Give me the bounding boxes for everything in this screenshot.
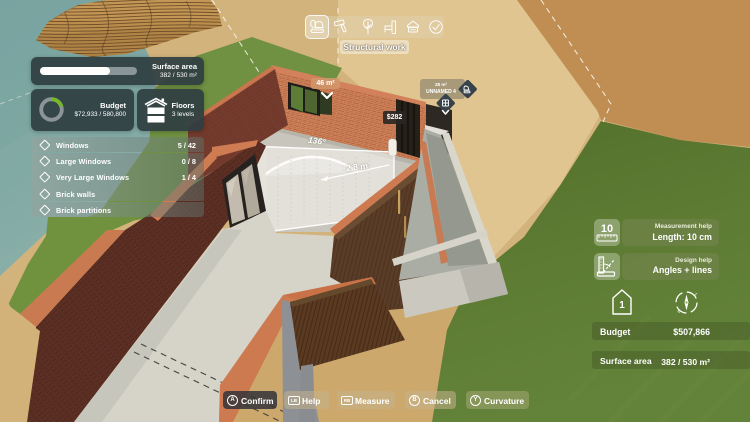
svg-text:1: 1 [619,300,625,311]
svg-text:Z: Z [694,291,699,297]
svg-text:10: 10 [601,223,613,235]
